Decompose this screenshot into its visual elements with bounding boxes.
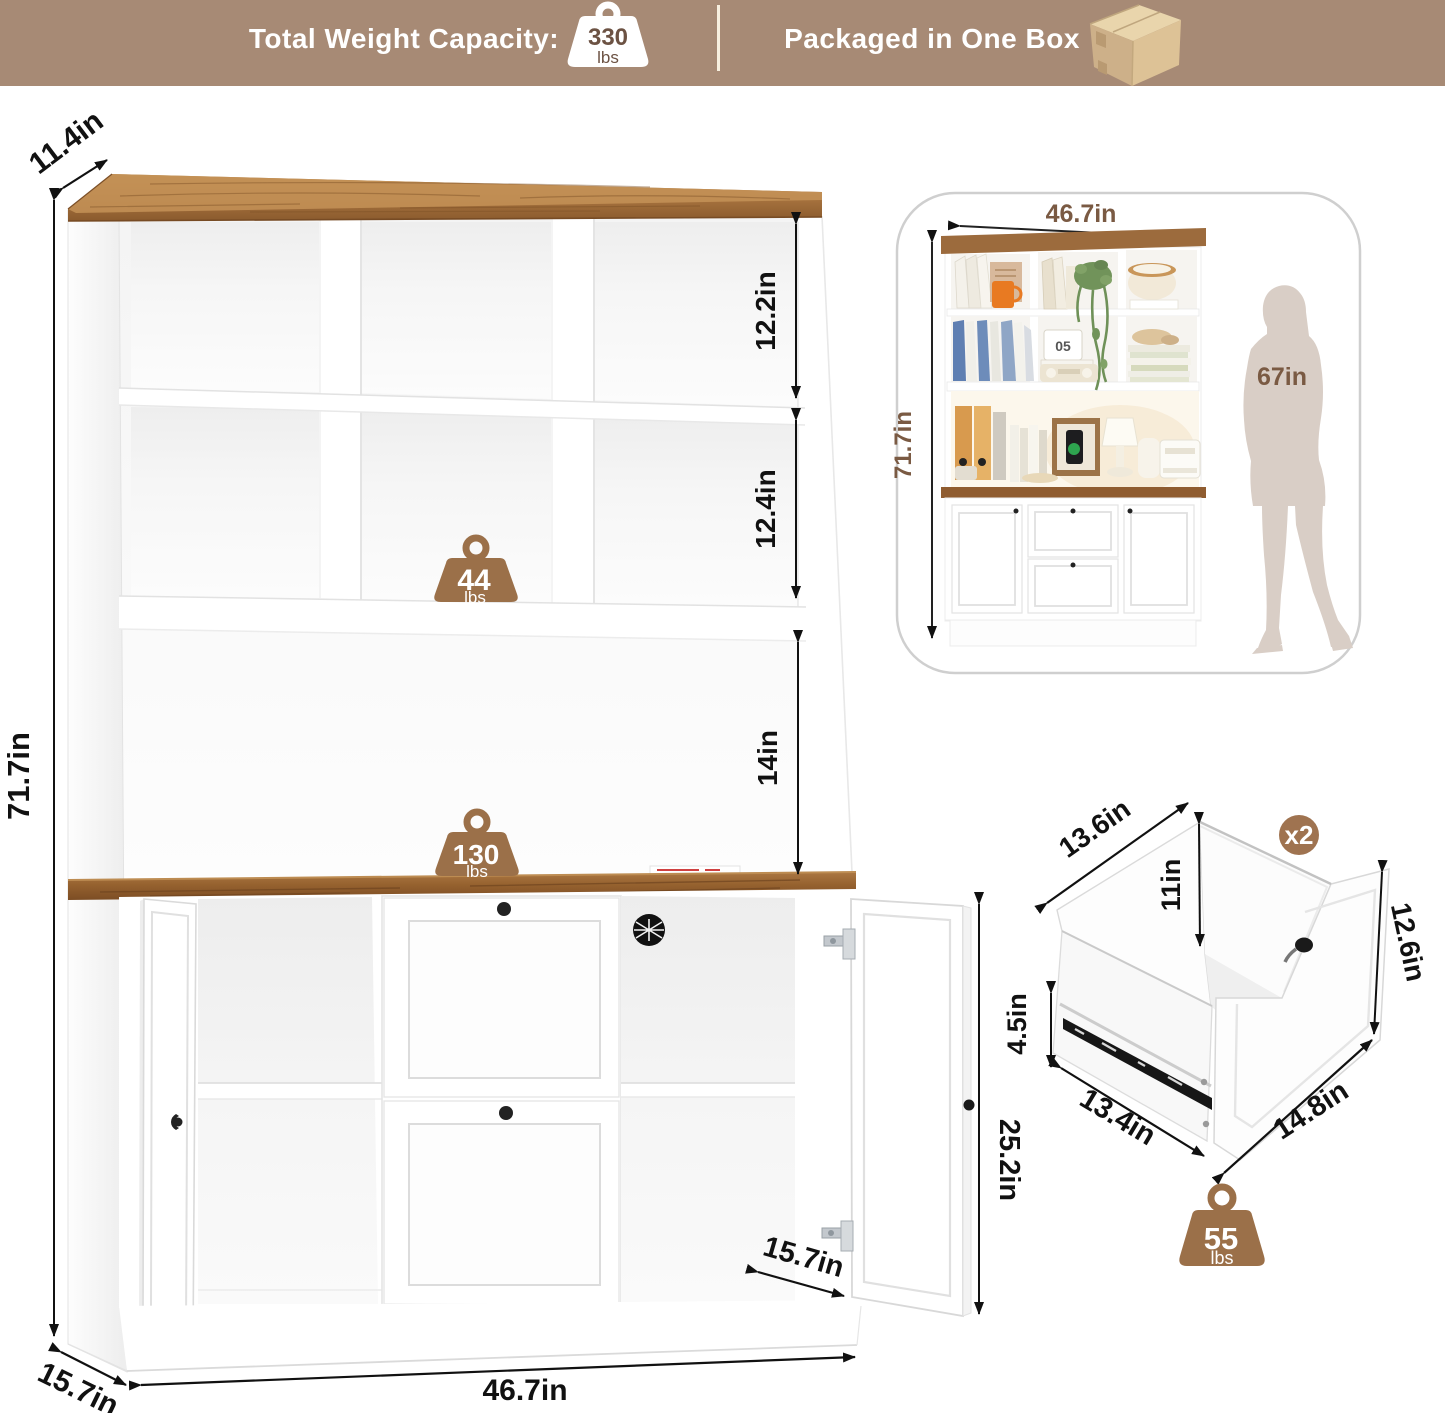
svg-text:12.4in: 12.4in <box>750 469 781 548</box>
svg-text:4.5in: 4.5in <box>1002 993 1032 1055</box>
svg-text:14in: 14in <box>752 730 783 786</box>
svg-text:lbs: lbs <box>464 588 486 607</box>
svg-text:11in: 11in <box>1156 859 1186 912</box>
svg-text:330: 330 <box>588 24 628 51</box>
svg-text:67in: 67in <box>1257 363 1307 391</box>
svg-text:12.2in: 12.2in <box>750 271 781 350</box>
svg-text:Total Weight Capacity:: Total Weight Capacity: <box>249 23 559 54</box>
svg-text:46.7in: 46.7in <box>482 1374 567 1407</box>
svg-text:25.2in: 25.2in <box>993 1119 1025 1201</box>
svg-text:lbs: lbs <box>1210 1248 1233 1268</box>
svg-text:x2: x2 <box>1285 820 1314 850</box>
svg-text:46.7in: 46.7in <box>1046 200 1117 228</box>
svg-text:lbs: lbs <box>466 862 488 881</box>
svg-text:Packaged in One Box: Packaged in One Box <box>784 23 1080 54</box>
svg-text:lbs: lbs <box>597 48 619 67</box>
svg-text:05: 05 <box>1055 338 1071 354</box>
svg-text:71.7in: 71.7in <box>890 411 917 479</box>
svg-text:71.7in: 71.7in <box>1 732 36 820</box>
